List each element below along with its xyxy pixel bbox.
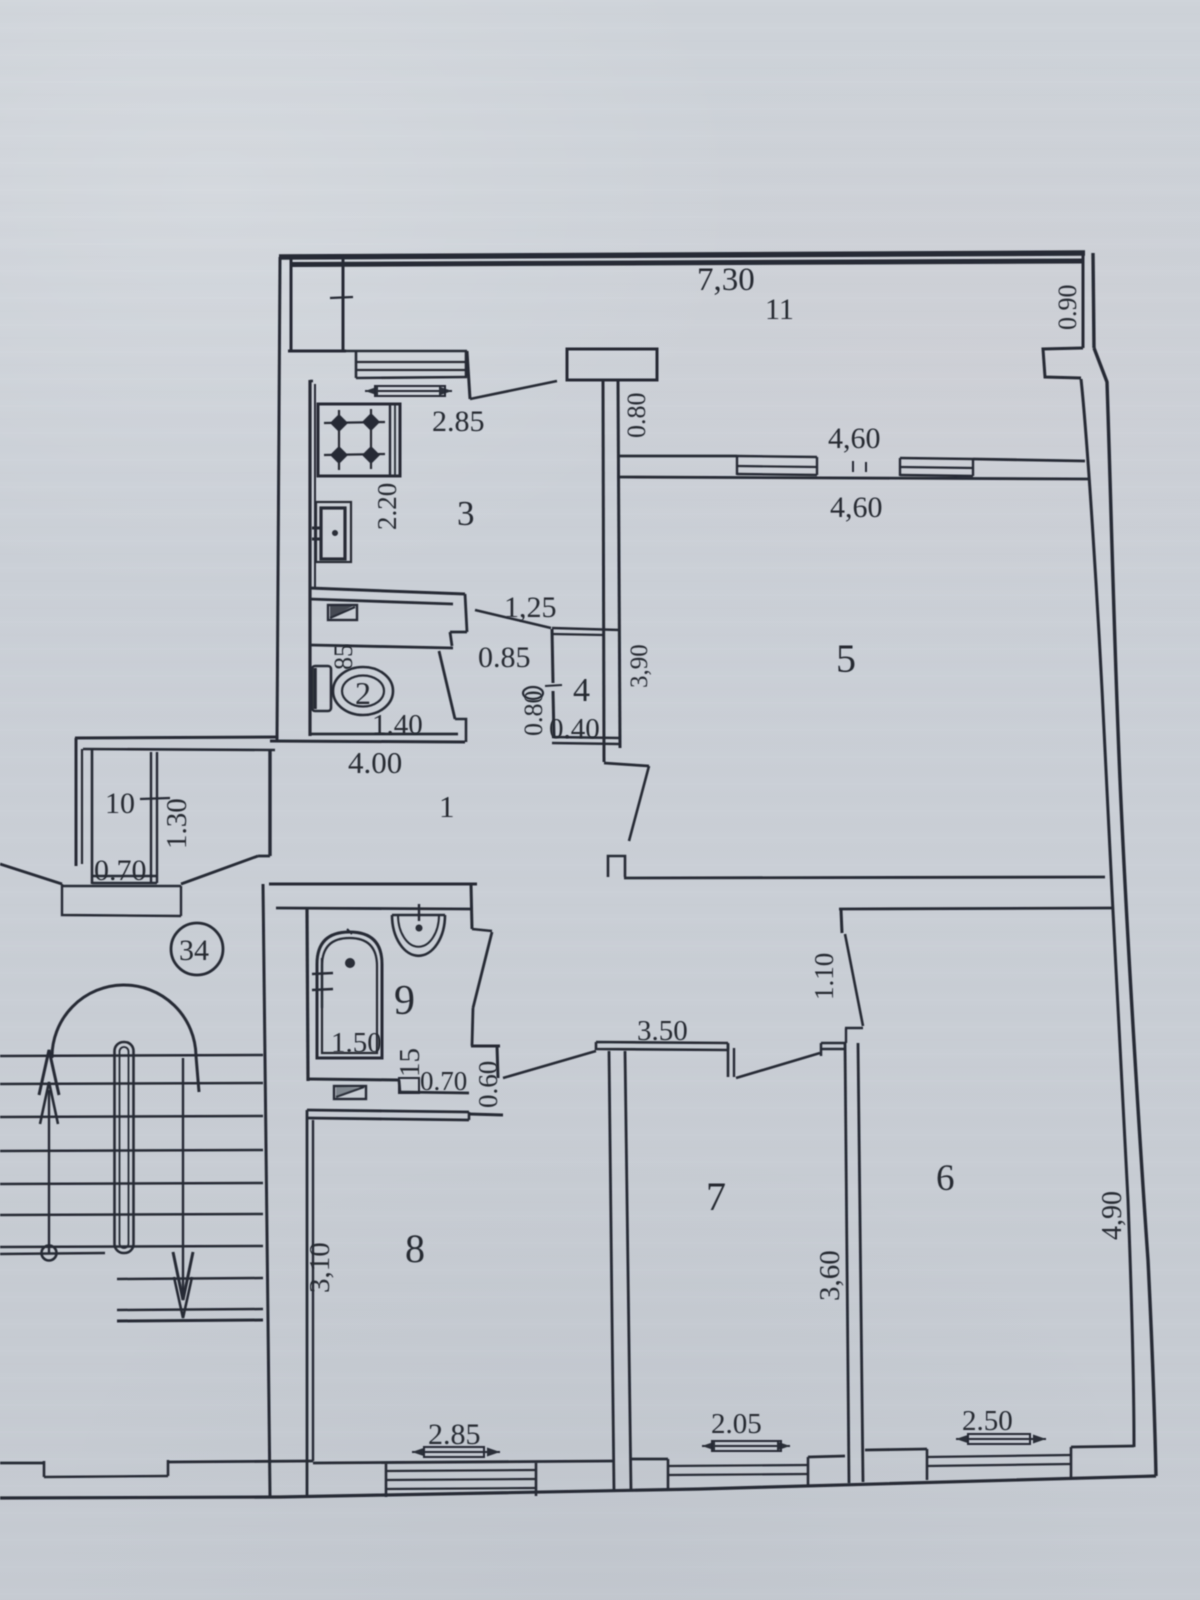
svg-text:1: 1: [439, 789, 455, 824]
svg-text:0.60: 0.60: [473, 1061, 503, 1108]
svg-text:1.50: 1.50: [331, 1027, 382, 1059]
svg-text:11: 11: [765, 293, 794, 326]
svg-text:1.30: 1.30: [161, 798, 193, 849]
svg-text:34: 34: [179, 934, 209, 967]
svg-text:3.50: 3.50: [637, 1015, 688, 1047]
svg-text:2.20: 2.20: [372, 483, 402, 530]
svg-text:1,25: 1,25: [504, 591, 557, 624]
svg-text:4,60: 4,60: [830, 491, 883, 524]
svg-text:8: 8: [405, 1226, 425, 1271]
svg-text:2.85: 2.85: [432, 405, 485, 438]
svg-text:2: 2: [355, 675, 371, 711]
svg-text:0.80: 0.80: [519, 691, 548, 737]
svg-text:4,60: 4,60: [828, 422, 881, 455]
svg-text:6: 6: [936, 1158, 955, 1199]
svg-text:0.90: 0.90: [1053, 285, 1082, 331]
svg-text:3: 3: [457, 494, 475, 533]
svg-text:3,10: 3,10: [304, 1242, 336, 1293]
svg-text:4,90: 4,90: [1097, 1191, 1128, 1240]
svg-text:3,60: 3,60: [814, 1250, 846, 1301]
svg-text:3,90: 3,90: [626, 644, 653, 688]
svg-text:2.50: 2.50: [962, 1405, 1013, 1437]
svg-text:4: 4: [573, 672, 590, 709]
svg-text:0.80: 0.80: [622, 393, 651, 439]
svg-text:0.70: 0.70: [94, 854, 147, 887]
svg-text:5: 5: [836, 636, 856, 681]
svg-text:0.85: 0.85: [478, 641, 531, 674]
svg-text:2.85: 2.85: [428, 1418, 481, 1451]
svg-text:0.40: 0.40: [549, 713, 600, 745]
svg-text:4.00: 4.00: [348, 745, 402, 780]
svg-text:7,30: 7,30: [697, 262, 755, 298]
svg-text:0.70: 0.70: [420, 1066, 467, 1096]
svg-text:1.40: 1.40: [372, 709, 423, 741]
svg-text:9: 9: [394, 978, 415, 1024]
svg-text:1.10: 1.10: [809, 953, 839, 1000]
svg-text:7: 7: [706, 1174, 726, 1219]
svg-text:2.05: 2.05: [711, 1408, 762, 1440]
svg-text:10: 10: [105, 787, 135, 820]
svg-text:85: 85: [329, 644, 358, 670]
